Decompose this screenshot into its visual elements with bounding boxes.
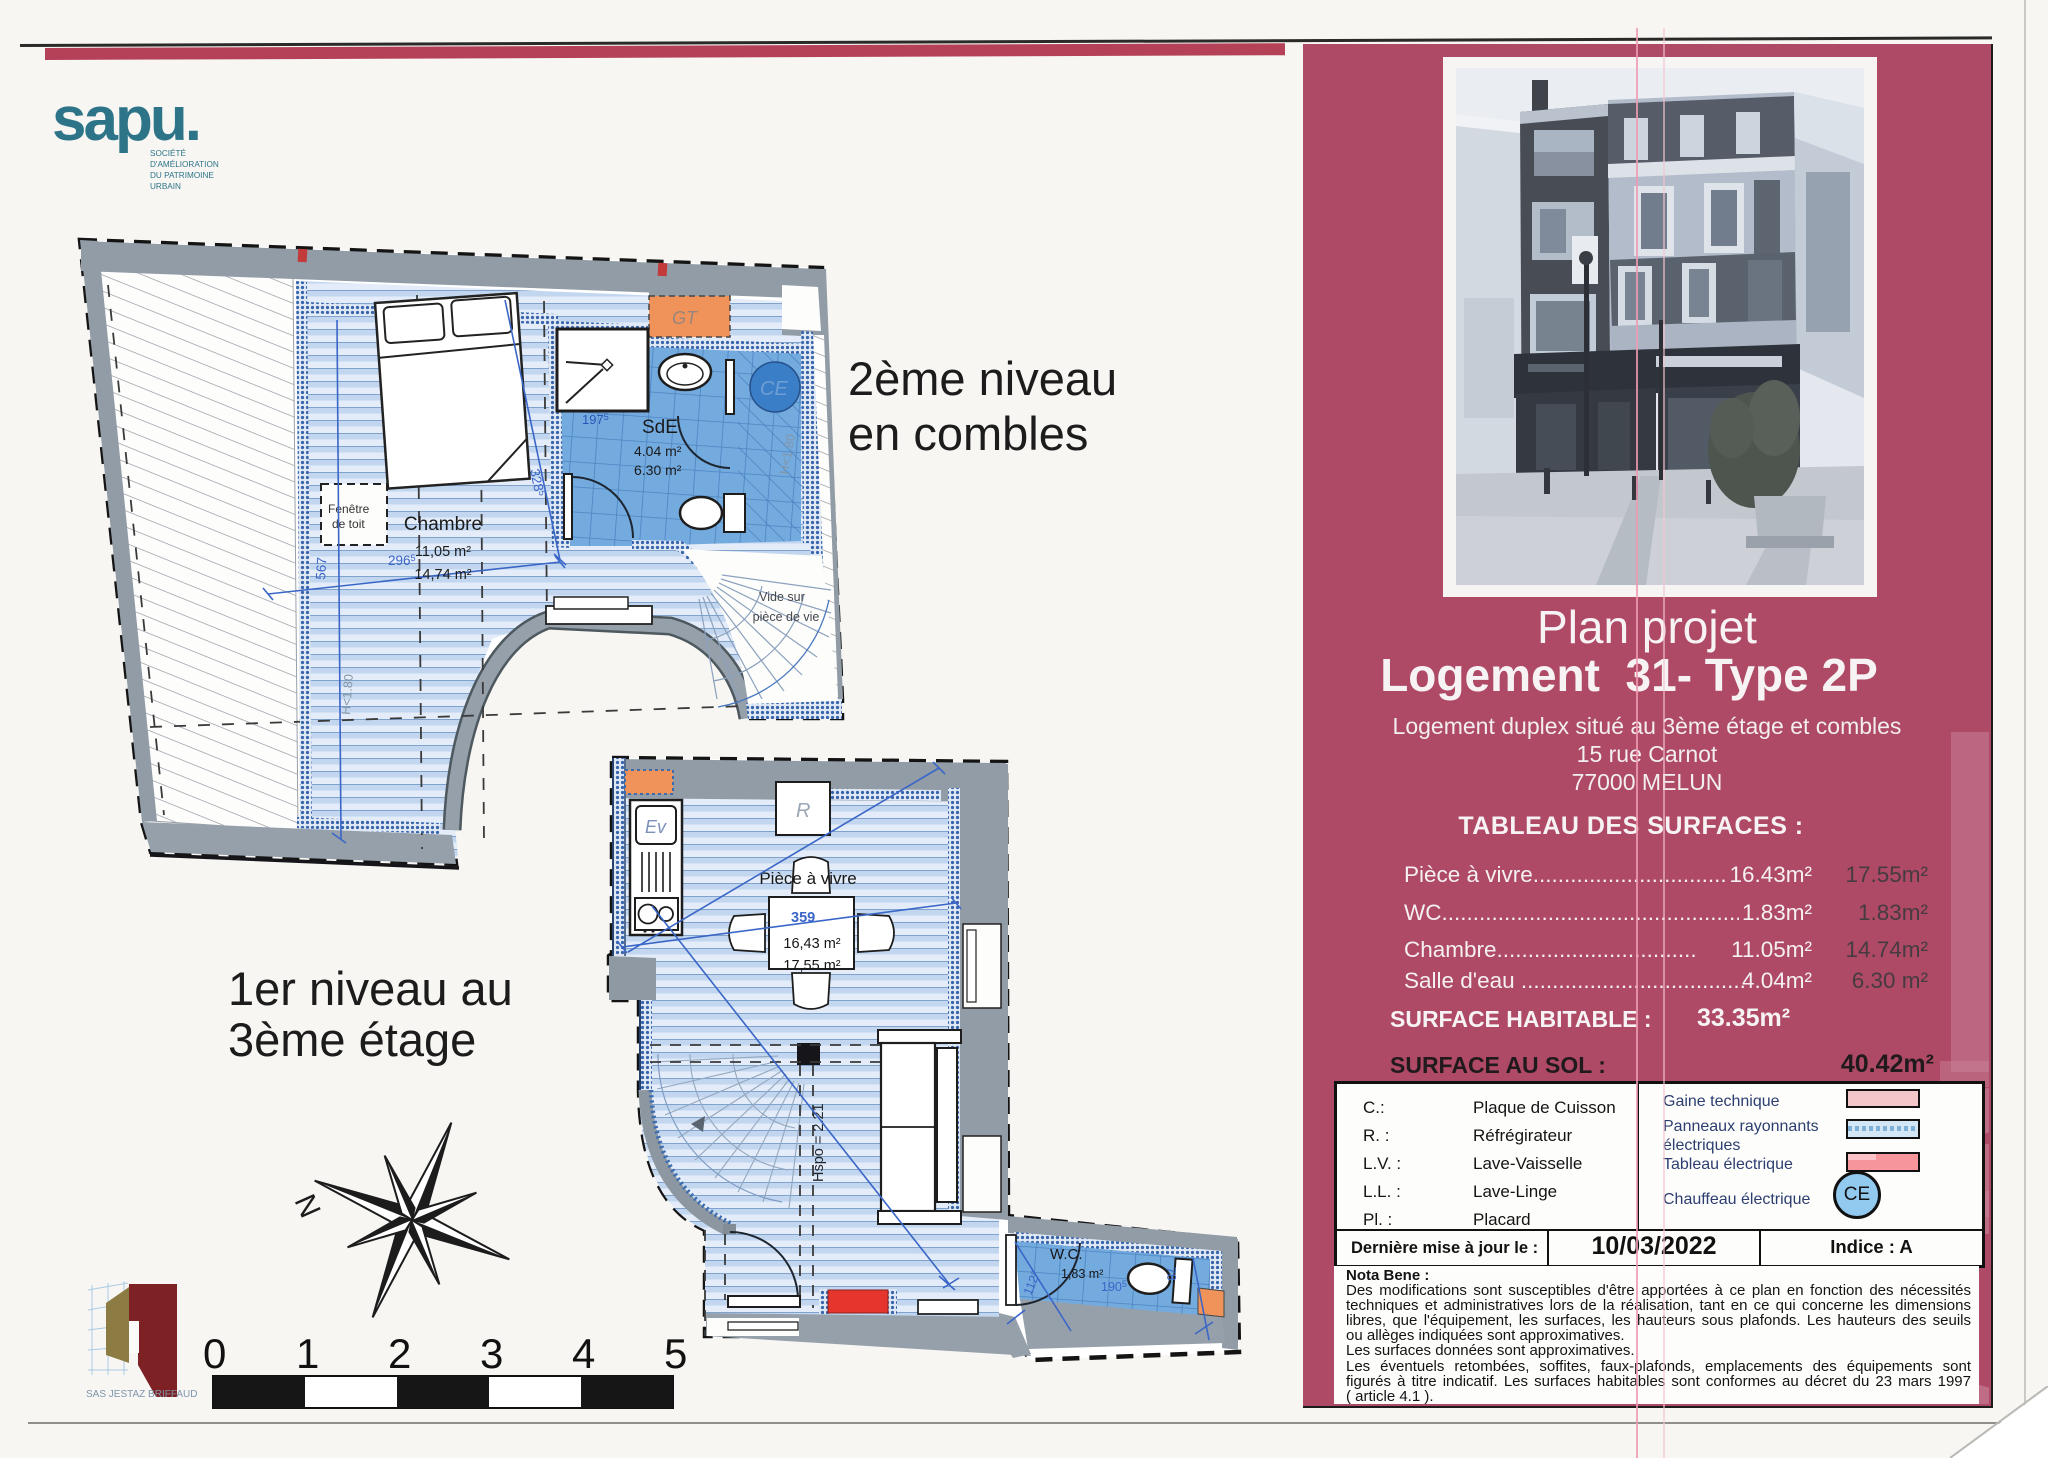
svg-text:Fenêtre: Fenêtre [328, 502, 370, 516]
svg-text:N: N [290, 1190, 327, 1223]
svg-text:Vide sur: Vide sur [759, 590, 805, 604]
svg-text:16,43 m²: 16,43 m² [783, 936, 840, 952]
svg-text:SOCIÉTÉ: SOCIÉTÉ [150, 148, 186, 158]
svg-text:GT: GT [672, 308, 699, 328]
svg-text:5: 5 [664, 1330, 687, 1377]
svg-text:Pièce à vivre: Pièce à vivre [759, 869, 856, 888]
svg-text:3: 3 [480, 1330, 503, 1377]
svg-text:567: 567 [313, 557, 330, 581]
svg-text:4.04 m²: 4.04 m² [634, 443, 682, 459]
svg-text:4: 4 [572, 1330, 595, 1377]
svg-text:SdE: SdE [642, 417, 678, 438]
svg-text:11,05 m²: 11,05 m² [415, 544, 471, 560]
svg-text:W.C.: W.C. [1050, 1246, 1083, 1263]
svg-text:R: R [796, 800, 810, 822]
svg-text:D'AMÉLIORATION: D'AMÉLIORATION [150, 159, 219, 169]
svg-text:1: 1 [296, 1330, 319, 1377]
svg-text:URBAIN: URBAIN [150, 182, 181, 191]
svg-text:de toit: de toit [332, 517, 365, 531]
svg-text:Chambre: Chambre [404, 514, 482, 535]
svg-text:sapu.: sapu. [52, 88, 199, 154]
svg-text:6.30 m²: 6.30 m² [634, 462, 682, 478]
svg-text:H<1.80: H<1.80 [339, 674, 356, 716]
svg-text:78: 78 [1164, 1267, 1178, 1281]
svg-text:17,55 m²: 17,55 m² [783, 958, 840, 974]
svg-text:Ev: Ev [645, 817, 667, 837]
svg-text:pièce de vie: pièce de vie [753, 610, 820, 624]
svg-text:Hspo = 2.21: Hspo = 2.21 [811, 1103, 827, 1182]
svg-text:SAS JESTAZ BRIFFAUD: SAS JESTAZ BRIFFAUD [86, 1389, 198, 1400]
svg-text:CE: CE [760, 378, 788, 400]
svg-text:1,83 m²: 1,83 m² [1061, 1267, 1103, 1281]
svg-text:14,74 m²: 14,74 m² [414, 567, 471, 583]
svg-text:DU PATRIMOINE: DU PATRIMOINE [150, 171, 214, 180]
svg-text:2: 2 [388, 1330, 411, 1377]
svg-text:0: 0 [203, 1330, 226, 1377]
